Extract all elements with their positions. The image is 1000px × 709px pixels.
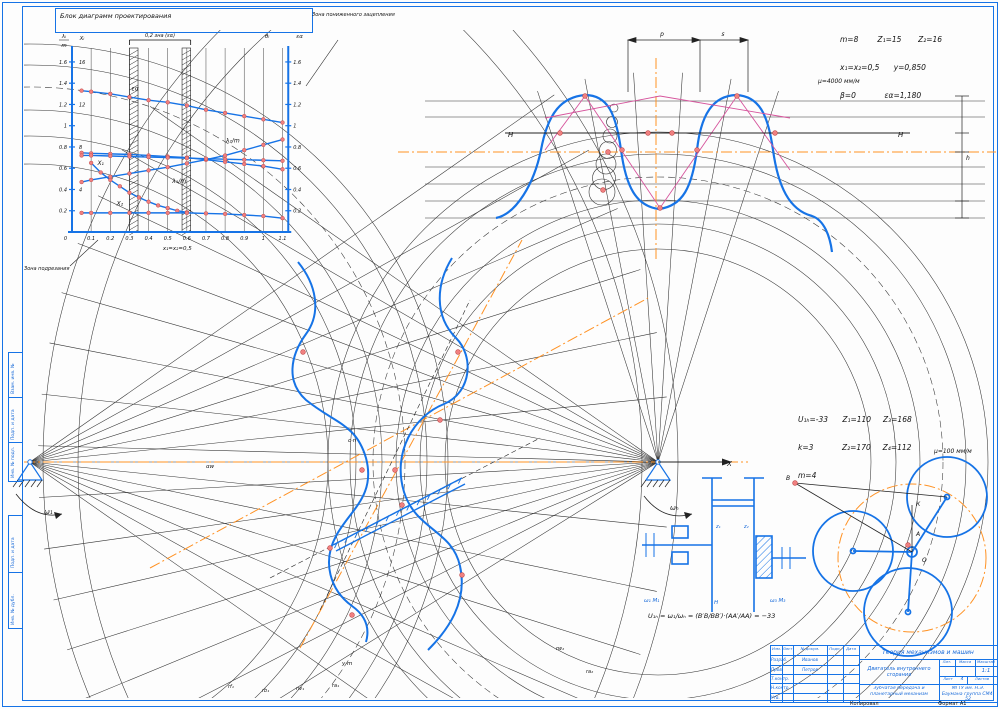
zone-note-bottom: Зона подрезания [24, 266, 104, 272]
data-point [128, 172, 132, 176]
data-point [147, 155, 151, 159]
hatch-stroke [182, 130, 191, 135]
chart-label: εα [132, 86, 139, 93]
profile-point [773, 131, 778, 136]
profile-point [620, 148, 625, 153]
point-A: А [915, 531, 920, 538]
data-point [108, 154, 112, 158]
stamp-divider [9, 572, 22, 573]
radial-construction-line [30, 270, 640, 462]
radial-construction-line [39, 462, 658, 498]
profile-point [606, 150, 611, 155]
chart-label: 1.4 [293, 81, 301, 87]
format-note: Формат А1 [938, 701, 966, 707]
tb-hline [771, 665, 859, 666]
spoke [908, 552, 912, 612]
scheme-carrier-label: Н [714, 600, 718, 606]
planetary-params-line1: U₁ₕ=-33 Z₁=110 Z₃=168 [798, 415, 912, 424]
tb-masshtab-val: 1:1 [975, 668, 997, 675]
aw-label: αw [206, 464, 215, 470]
tb-list-val: 4 [957, 677, 967, 683]
hatch-stroke [182, 120, 191, 125]
hatch-stroke [129, 115, 138, 120]
kinematic-scheme [642, 478, 806, 612]
radial-construction-line [30, 462, 618, 709]
profile-point [695, 148, 700, 153]
radius-label-rw2: rw₂ [556, 646, 564, 652]
data-point [261, 143, 265, 147]
data-point [108, 178, 112, 182]
tb-hline [771, 655, 859, 656]
omega1-label: ω₁ [44, 508, 53, 516]
velocity-line [795, 483, 912, 552]
hatch-stroke [182, 170, 191, 175]
data-point [89, 178, 93, 182]
planetary-params-line2: k=3 Z₂=170 Z₄=112 [798, 443, 912, 452]
data-point [242, 213, 246, 217]
data-point [89, 90, 93, 94]
hatch-stroke [182, 70, 191, 75]
radius-label-rw1: rw₁ [296, 686, 304, 692]
centerline-diagonal-2 [150, 298, 648, 568]
hatch-stroke [182, 145, 191, 150]
hatch-stroke [129, 165, 138, 170]
chart-label: m [61, 43, 66, 49]
hatch-stroke [129, 180, 138, 185]
data-point [89, 211, 93, 215]
data-point [147, 211, 151, 215]
chart-label: 16 [79, 60, 85, 66]
chart-label: λ₂/m [225, 138, 240, 145]
hatch-stroke [182, 225, 191, 230]
hatch-stroke [182, 190, 191, 195]
common-tangent [320, 300, 470, 610]
chart-label: 0.8 [221, 236, 229, 242]
planetary-params-line3: m=4 [798, 471, 912, 480]
hatch-stroke [182, 60, 191, 65]
tb-masshtab: Масштаб [975, 660, 997, 665]
data-point [80, 211, 84, 215]
hatch-stroke [129, 125, 138, 130]
chart-label: λᵢ [61, 34, 66, 40]
chart-label: 0.2 [106, 236, 114, 242]
data-point [99, 171, 103, 175]
data-point [223, 212, 227, 216]
hatch-stroke [129, 120, 138, 125]
radial-construction-line [30, 462, 554, 709]
mesh-tooth-profile-right [401, 258, 468, 650]
hatch-stroke [129, 215, 138, 220]
tb-hline [771, 674, 859, 675]
hatch-stroke [182, 150, 191, 155]
zone-note-top: Зона пониженного зацепления [312, 12, 404, 18]
scheme-w3-label: ω₃ М₃ [770, 598, 786, 604]
radial-construction-line [85, 462, 658, 699]
arrowhead [692, 38, 700, 43]
chart-label: 1.1 [279, 236, 287, 242]
pivot-right [641, 459, 732, 520]
data-point [261, 164, 265, 168]
omegaH-label: ωₕ [670, 504, 679, 512]
title-block: Изм. Лист № докум. Подп. Дата Разраб. Ив… [770, 645, 998, 703]
profile-point [400, 503, 405, 508]
data-point [242, 114, 246, 118]
chart-label: 4 [79, 187, 82, 193]
data-point [175, 209, 179, 213]
margin-label-2: Подп. и дата [11, 409, 16, 440]
gear-params-line3: β=0 εα=1,180 [840, 91, 942, 100]
gear-parameters: m=8 Z₁=15 Z₂=16 x₁=x₂=0,5 y=0,850 β=0 εα… [840, 16, 942, 110]
margin-label-4: Подп. и дата [11, 537, 16, 568]
chart-label: λ₁/m [171, 178, 186, 185]
hatch-stroke [129, 70, 138, 75]
chart-label: 1.2 [293, 102, 301, 108]
spoke [853, 551, 912, 552]
radial-construction-line [107, 462, 658, 709]
chart-label: x₁=x₂=0,5 [162, 246, 192, 252]
radial-construction-line [30, 462, 640, 654]
data-point [128, 95, 132, 99]
profile-point [460, 573, 465, 578]
chart-label: 1 [64, 124, 67, 130]
data-point [185, 156, 189, 160]
radial-construction-line [38, 446, 658, 462]
hatch-stroke [182, 50, 191, 55]
hatch-stroke [182, 110, 191, 115]
corner-stamp-text: Блок диаграмм проектирования [60, 12, 171, 20]
radial-construction-line [50, 343, 658, 462]
profile-point [360, 468, 365, 473]
point-O: О [922, 557, 927, 564]
data-point [128, 155, 132, 159]
chart-label: 0.3 [125, 236, 133, 242]
hatch-stroke [129, 225, 138, 230]
hatch-stroke [129, 60, 138, 65]
hatch-stroke [182, 185, 191, 190]
hatch-stroke [129, 80, 138, 85]
x-axis-label: X [726, 460, 732, 468]
data-point [281, 167, 285, 171]
radial-construction-line [78, 243, 658, 462]
data-point [128, 211, 132, 215]
data-point [108, 92, 112, 96]
data-point [261, 117, 265, 121]
section-mark-left: Н [508, 131, 514, 139]
radial-construction-line [54, 462, 658, 600]
ratio-formula: U₁ₕ = ω₁/ωₕ = (В′В/ВВ′)·(АА′/АА) = −33 [648, 612, 823, 620]
pivot-pin [28, 460, 32, 464]
data-point [156, 204, 160, 208]
stamp-divider [9, 442, 22, 443]
tb-hline [771, 693, 859, 694]
data-point [128, 191, 132, 195]
scheme-z2-label: z₂ [743, 524, 749, 530]
ground-hatch [641, 480, 670, 487]
profile-point [601, 188, 606, 193]
data-point [223, 154, 227, 158]
margin-label-5: Инв. № дубл. [11, 594, 16, 625]
tb-col-list: Лист [782, 647, 793, 652]
chart-label: 0.6 [59, 166, 67, 172]
tb-listov-label: Листов [967, 677, 997, 682]
stamp-divider [9, 397, 22, 398]
section-mark-right: Н [898, 131, 904, 139]
chart-label: 1 [293, 124, 296, 130]
chart-label: 1.4 [59, 81, 67, 87]
chart-label: 0.8 [293, 145, 301, 151]
chart-label: 0.4 [59, 187, 67, 193]
hatch-stroke [129, 65, 138, 70]
data-point [204, 212, 208, 216]
hatch-stroke [129, 105, 138, 110]
data-point [281, 159, 285, 163]
tb-row-prov: Пров. [771, 667, 793, 672]
profile-point [456, 350, 461, 355]
radius-label-ra2: ra₂ [586, 669, 593, 675]
data-point [80, 154, 84, 158]
data-point [166, 206, 170, 210]
tb-sheet-title: Зубчатая передача и планетарный механизм [861, 686, 937, 697]
profile-point [328, 546, 333, 551]
data-point [242, 158, 246, 162]
copy-note: Копировал [850, 701, 879, 707]
data-point [261, 158, 265, 162]
tb-row-tkontr: Т.контр. [771, 676, 795, 681]
radial-construction-line [30, 462, 589, 709]
hatch-stroke [182, 90, 191, 95]
data-point [261, 214, 265, 218]
profile-point [583, 94, 588, 99]
point-K: К [916, 501, 921, 508]
hatch-stroke [129, 110, 138, 115]
profile-point [658, 206, 663, 211]
chart-label: 0,2 зна (εα) [145, 33, 175, 39]
mesh-tooth-profiles [292, 258, 467, 650]
hatch-stroke [182, 165, 191, 170]
hatch-stroke [129, 50, 138, 55]
gear-z1b [672, 552, 688, 564]
radial-construction-line [67, 462, 658, 650]
data-point [89, 154, 93, 158]
data-point [281, 138, 285, 142]
chart-canvas: 0.20.20.40.40.60.60.80.8111.21.21.41.41.… [56, 26, 324, 260]
tb-name-razrab: Иванов [793, 657, 827, 662]
profile-point [393, 468, 398, 473]
chart-label: 0.6 [293, 166, 301, 172]
hatch-stroke [129, 135, 138, 140]
arrowhead [684, 512, 692, 519]
data-point [89, 161, 93, 165]
radial-construction-line [634, 73, 658, 462]
hatch-stroke [182, 125, 191, 130]
tb-lit: Лит. [939, 660, 955, 665]
detail-scale-label: μ=4000 мм/м [818, 78, 860, 86]
tb-hline [939, 666, 997, 667]
tb-doc-title: Теория механизмов и машин [859, 649, 997, 657]
dim-label-p: p [659, 31, 664, 38]
profile-point [558, 131, 563, 136]
hatch-stroke [182, 135, 191, 140]
chart-label: 1.2 [59, 102, 67, 108]
hatch-stroke [129, 175, 138, 180]
data-point [281, 121, 285, 125]
chart-label: 0.9 [240, 236, 248, 242]
hatch-stroke [129, 205, 138, 210]
profile-point [438, 418, 443, 423]
tb-col-izm: Изм. [771, 647, 782, 652]
chart-label: 0.2 [59, 209, 67, 215]
chart-label: 0.8 [59, 145, 67, 151]
data-point [166, 156, 170, 160]
radius-label-rb1: rb₁ [262, 688, 269, 694]
tb-hline [859, 684, 997, 685]
data-point [166, 165, 170, 169]
hatch-stroke [129, 140, 138, 145]
hatch-stroke [129, 220, 138, 225]
margin-label-1: Взам. инв. № [11, 363, 16, 394]
profile-point [670, 131, 675, 136]
radial-construction-line [30, 462, 657, 591]
data-point [223, 111, 227, 115]
arrowhead [740, 38, 748, 43]
tb-col-doc: № докум. [793, 647, 827, 652]
data-point [204, 108, 208, 112]
cn-label: c·n [348, 438, 357, 444]
hatch-stroke [129, 200, 138, 205]
hatch-stroke [182, 115, 191, 120]
margin-label-3: Инв. № подл. [11, 447, 16, 478]
chart-label: εα [296, 34, 303, 40]
dim-label-h: h [966, 155, 970, 162]
hatch-stroke [182, 140, 191, 145]
velocity-triangle [795, 483, 947, 552]
scheme-z1-label: z₁ [715, 524, 721, 530]
chart-label: Xᵢ [79, 36, 85, 42]
chart-label: 0.2 [293, 209, 301, 215]
hatch-stroke [129, 55, 138, 60]
profile-point [301, 350, 306, 355]
hatch-stroke [129, 75, 138, 80]
planetary-parameters: U₁ₕ=-33 Z₁=110 Z₃=168 k=3 Z₂=170 Z₄=112 … [798, 396, 912, 490]
profile-point [793, 481, 798, 486]
chart-label: 0.6 [183, 236, 191, 242]
data-point [108, 211, 112, 215]
data-point [281, 216, 285, 220]
chart-label: 0.5 [164, 236, 172, 242]
gear-params-line2: x₁=x₂=0,5 y=0,850 [840, 63, 942, 72]
data-point [166, 100, 170, 104]
tb-list-label: Лист [939, 677, 957, 682]
radius-label-ra1: ra₁ [332, 683, 339, 689]
gear-z2 [756, 536, 772, 578]
tb-row-razrab: Разраб. [771, 657, 793, 662]
hatch-stroke [129, 130, 138, 135]
series-line [91, 163, 187, 212]
ym-label: y·m [341, 661, 352, 667]
plan-scale-label: μ=100 мм/м [934, 448, 972, 456]
hatch-stroke [182, 220, 191, 225]
data-point [242, 148, 246, 152]
tb-row-nkontr: Н.контр. [771, 685, 795, 690]
chart-label: 1.6 [293, 60, 301, 66]
hatch-stroke [182, 205, 191, 210]
hatch-stroke [182, 80, 191, 85]
hatch-stroke [182, 195, 191, 200]
hatch-stroke [129, 145, 138, 150]
chart-label: 0.4 [145, 236, 153, 242]
drawing-sheet: { "corner_stamp": { "text": "Блок диагра… [0, 0, 1000, 709]
hatch-stroke [182, 65, 191, 70]
data-point [147, 200, 151, 204]
chart-label: X₂ [116, 200, 124, 207]
omega1-arrow [16, 494, 62, 515]
dim-label-s: s [721, 31, 724, 38]
data-point [185, 211, 189, 215]
data-point [137, 196, 141, 200]
tb-massa: Масса [955, 660, 975, 665]
chart-label: X₁ [96, 160, 104, 167]
tb-name-prov: Петров [793, 667, 827, 672]
tb-hline [771, 683, 859, 684]
chart-label: 1.6 [59, 60, 67, 66]
gear-params-line1: m=8 Z₁=15 Z₂=16 [840, 35, 942, 44]
hatch-stroke [182, 95, 191, 100]
hatch-stroke [182, 215, 191, 220]
profile-point [735, 94, 740, 99]
chart-label: 8 [79, 145, 82, 151]
chart-label: 0 [64, 236, 67, 242]
hatch-stroke [182, 75, 191, 80]
profile-point [906, 543, 911, 548]
data-point [80, 180, 84, 184]
hatch-stroke [129, 185, 138, 190]
chart-label: 0.7 [202, 236, 211, 242]
chart-label: 12 [79, 102, 85, 108]
radius-label-rf1: rf₁ [228, 684, 234, 690]
radial-construction-line [30, 333, 657, 462]
data-point [147, 168, 151, 172]
data-point [185, 104, 189, 108]
hatch-stroke [129, 100, 138, 105]
profile-point [350, 613, 355, 618]
chart-label: θᵢ [265, 34, 269, 40]
corner-stamp: Блок диаграмм проектирования [55, 8, 313, 33]
data-point [166, 211, 170, 215]
data-point [147, 98, 151, 102]
data-point [118, 184, 122, 188]
scheme-w1-label: ω₁ М₁ [644, 598, 660, 604]
tb-col-podp: Подп. [827, 647, 843, 652]
tb-project: Двигатель внутреннего сгорания [861, 666, 937, 679]
data-point [80, 89, 84, 93]
chart-label: 0.4 [293, 187, 301, 193]
centerline-diagonal-1 [300, 240, 522, 648]
arrowhead [628, 38, 636, 43]
hatch-stroke [182, 200, 191, 205]
tb-row-utv: Утв. [771, 695, 793, 700]
hatch-stroke [129, 160, 138, 165]
profile-point [646, 131, 651, 136]
arrowhead [54, 512, 62, 519]
data-point [223, 157, 227, 161]
chart-label: 0.1 [87, 236, 95, 242]
data-point [242, 162, 246, 166]
radial-construction-line [42, 394, 658, 462]
hatch-stroke [182, 85, 191, 90]
blocking-contour-chart: 0.20.20.40.40.60.60.80.8111.21.21.41.41.… [56, 26, 324, 260]
point-B: В [786, 475, 790, 482]
hatch-stroke [182, 55, 191, 60]
